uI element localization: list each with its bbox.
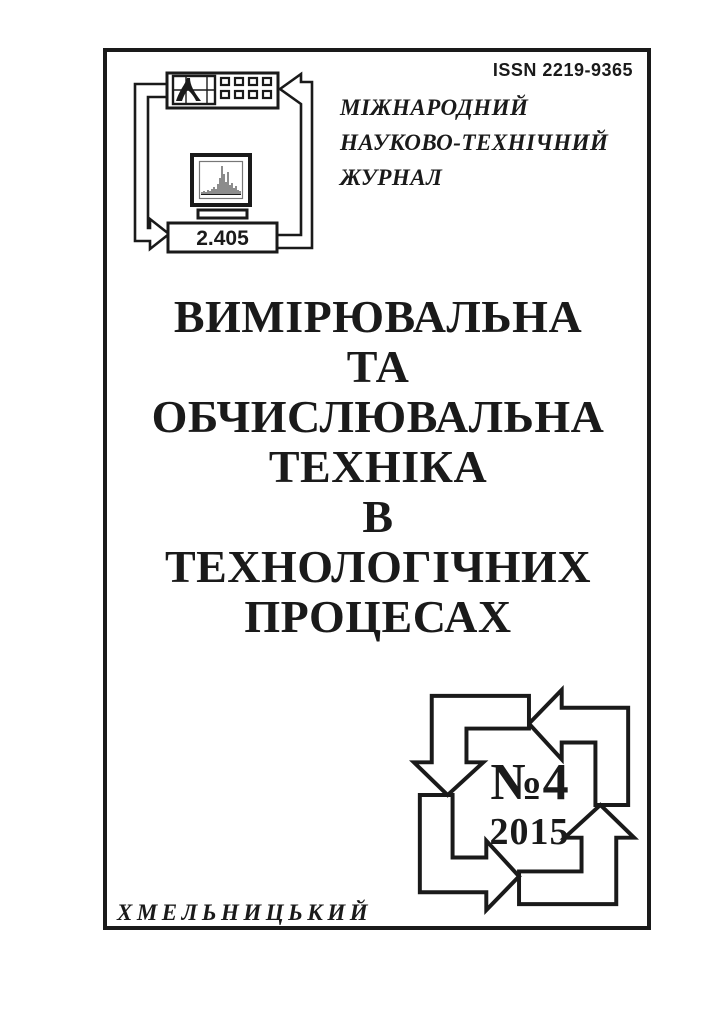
issue-block: №4 2015: [452, 756, 607, 852]
title-line: ПРОЦЕСАХ: [105, 592, 651, 642]
journal-cover-page: ISSN 2219-9365: [0, 0, 724, 1024]
title-line: В: [105, 492, 651, 542]
loop-arrow-right: [277, 74, 312, 248]
title-line: ОБЧИСЛЮВАЛЬНА: [105, 392, 651, 442]
issue-year: 2015: [452, 812, 607, 852]
journal-title: ВИМІРЮВАЛЬНА ТА ОБЧИСЛЮВАЛЬНА ТЕХНІКА В …: [105, 292, 651, 642]
journal-type-line: НАУКОВО-ТЕХНІЧНИЙ: [340, 125, 608, 160]
title-line: ТЕХНОЛОГІЧНИХ: [105, 542, 651, 592]
journal-type-block: МІЖНАРОДНИЙ НАУКОВО-ТЕХНІЧНИЙ ЖУРНАЛ: [340, 90, 608, 195]
issue-number: №4: [452, 756, 607, 810]
loop-arrow-left: [135, 84, 169, 249]
issn-label: ISSN 2219-9365: [400, 60, 633, 80]
keyboard-icon: [198, 210, 247, 218]
title-line: ТЕХНІКА: [105, 442, 651, 492]
logo-display-value: 2.405: [168, 224, 277, 253]
title-line: ВИМІРЮВАЛЬНА: [105, 292, 651, 342]
title-line: ТА: [105, 342, 651, 392]
journal-type-line: МІЖНАРОДНИЙ: [340, 90, 608, 125]
city-label: ХМЕЛЬНИЦЬКИЙ: [117, 900, 372, 926]
journal-type-line: ЖУРНАЛ: [340, 160, 608, 195]
